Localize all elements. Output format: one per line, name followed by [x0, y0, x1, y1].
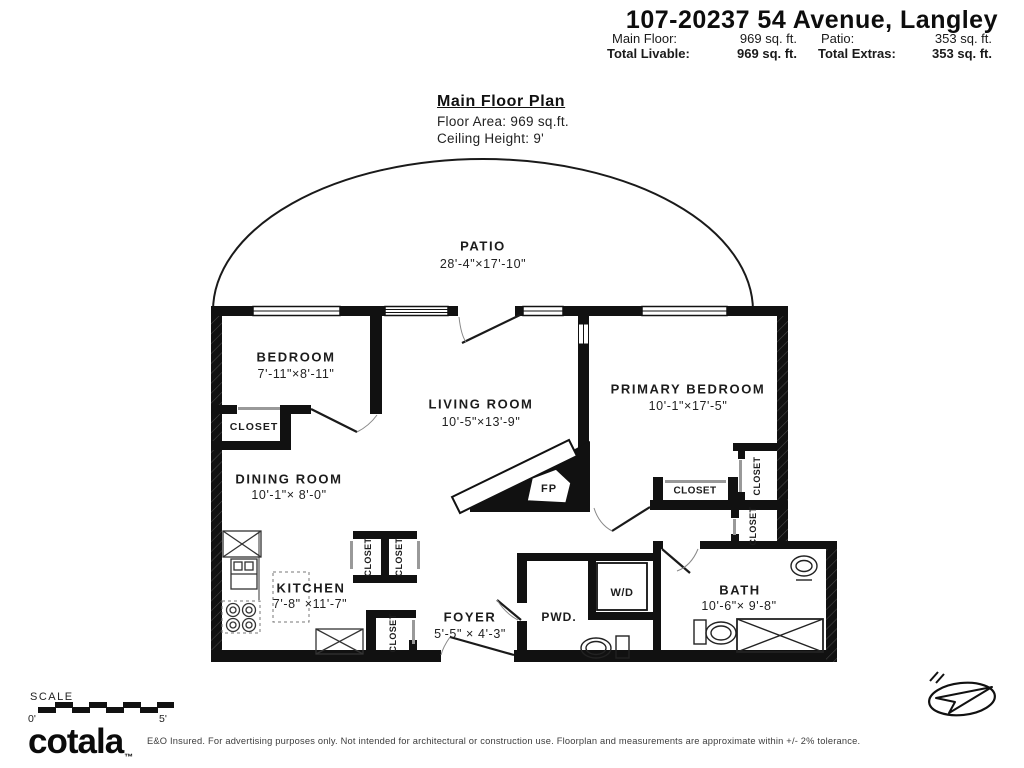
windows-group	[253, 307, 727, 345]
bath-room-dims: 10'-6"× 9'-8"	[701, 599, 776, 613]
mid-closet-left-label: CLOSET	[363, 538, 373, 577]
primary-side-closet-label: CLOSET	[752, 457, 762, 496]
floorplan-page: 107-20237 54 Avenue, Langley Main Floor:…	[0, 0, 1024, 768]
primary-bedroom-dims: 10'-1"×17'-5"	[649, 399, 728, 413]
cotala-logo: cotala™	[28, 722, 132, 762]
dining-room-dims: 10'-1"× 8'-0"	[251, 488, 326, 502]
fireplace-label: FP	[541, 483, 557, 495]
bedroom-closet-label: CLOSET	[230, 421, 279, 433]
patio-room-label: PATIO	[460, 239, 506, 254]
living-room-dims: 10'-5"×13'-9"	[442, 415, 521, 429]
scale-bar	[38, 702, 174, 713]
foyer-room-label: FOYER	[444, 610, 497, 625]
foyer-room-dims: 5'-5" × 4'-3"	[434, 627, 506, 641]
dining-room-label: DINING ROOM	[235, 472, 342, 487]
logo-text: cotala	[28, 722, 123, 761]
kitchen-room-dims: 7'-8" ×11'-7"	[273, 597, 347, 611]
floor-plan-drawing	[0, 0, 1024, 768]
primary-closet-label: CLOSET	[674, 486, 717, 497]
bedroom-room-label: BEDROOM	[256, 350, 335, 365]
disclaimer-text: E&O Insured. For advertising purposes on…	[147, 736, 860, 746]
fireplace-group	[452, 440, 590, 513]
bedroom-room-dims: 7'-11"×8'-11"	[258, 367, 335, 381]
patio-arc	[213, 159, 753, 311]
logo-trademark-icon: ™	[124, 752, 133, 762]
washer-dryer-label: W/D	[611, 587, 634, 599]
powder-room-label: PWD.	[541, 610, 576, 624]
foyer-closet-label: CLOSET	[388, 614, 398, 653]
scale-label: SCALE	[30, 691, 74, 703]
north-arrow-icon	[928, 672, 997, 718]
kitchen-room-label: KITCHEN	[277, 581, 346, 596]
primary-bedroom-label: PRIMARY BEDROOM	[611, 382, 766, 397]
bath-room-label: BATH	[719, 583, 761, 598]
hall-closet-label: CLOSET	[748, 507, 758, 546]
patio-room-dims: 28'-4"×17'-10"	[440, 257, 526, 271]
scale-max: 5'	[159, 713, 167, 725]
mid-closet-right-label: CLOSET	[394, 538, 404, 577]
living-room-label: LIVING ROOM	[429, 397, 534, 412]
